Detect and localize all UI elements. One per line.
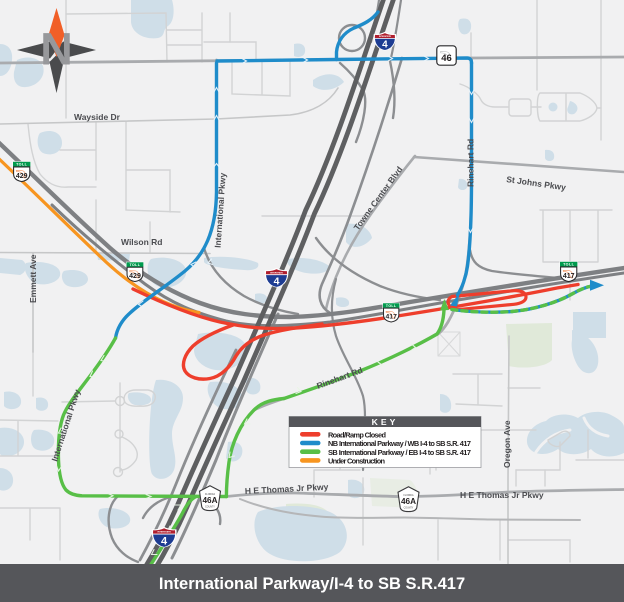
svg-text:N: N: [40, 24, 73, 75]
svg-text:46: 46: [441, 53, 452, 64]
svg-text:SB International Parkway / EB: SB International Parkway / EB I-4 to SB …: [328, 448, 471, 457]
svg-text:Under Construction: Under Construction: [328, 457, 385, 466]
svg-text:Road/Ramp Closed: Road/Ramp Closed: [328, 431, 386, 440]
svg-text:KEY: KEY: [372, 417, 399, 427]
svg-text:Emmett Ave: Emmett Ave: [28, 254, 38, 303]
svg-text:Oregon Ave: Oregon Ave: [502, 420, 512, 468]
svg-text:429: 429: [129, 273, 141, 280]
svg-text:Wilson Rd: Wilson Rd: [121, 237, 162, 247]
svg-text:NB International Parkway / WB: NB International Parkway / WB I-4 to SB …: [328, 439, 471, 448]
svg-text:Wayside Dr: Wayside Dr: [74, 112, 121, 122]
svg-text:417: 417: [563, 273, 575, 280]
svg-text:417: 417: [386, 314, 398, 321]
svg-text:Rinehart Rd: Rinehart Rd: [466, 139, 476, 187]
svg-text:H E Thomas Jr Pkwy: H E Thomas Jr Pkwy: [460, 490, 544, 500]
svg-text:International Parkway/I-4 to S: International Parkway/I-4 to SB S.R.417: [159, 575, 465, 593]
svg-text:429: 429: [16, 173, 28, 180]
